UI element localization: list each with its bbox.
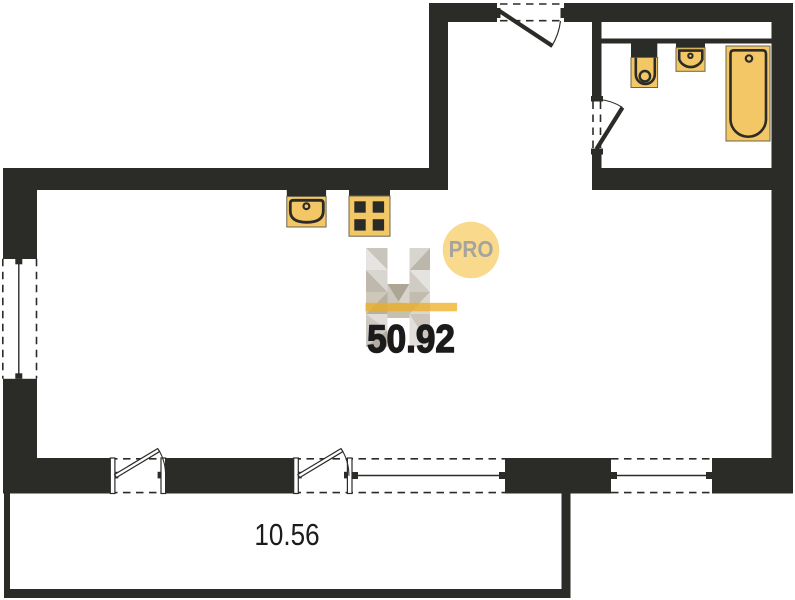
svg-text:10.56: 10.56 — [254, 518, 319, 553]
svg-text:PRO: PRO — [449, 236, 494, 262]
svg-text:50.92: 50.92 — [367, 316, 455, 360]
